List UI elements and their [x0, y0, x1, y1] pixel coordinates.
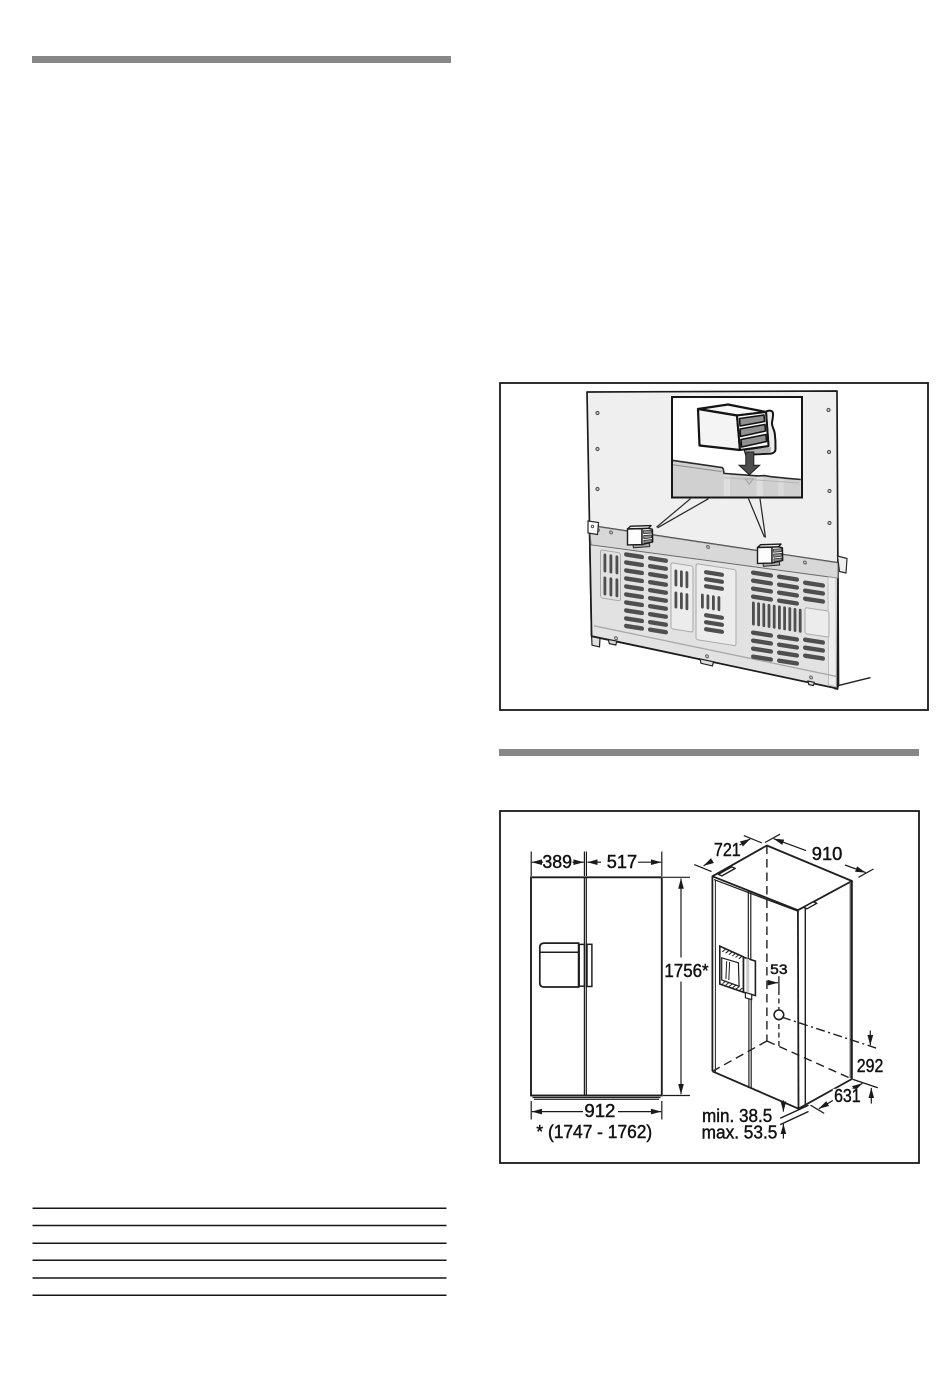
- svg-text:517: 517: [607, 851, 637, 872]
- svg-text:721: 721: [714, 839, 741, 860]
- svg-text:912: 912: [584, 1100, 615, 1121]
- svg-text:389: 389: [542, 851, 572, 872]
- svg-text:53: 53: [770, 962, 788, 977]
- svg-text:1756*: 1756*: [664, 960, 708, 981]
- svg-text:910: 910: [812, 843, 843, 864]
- svg-text:* (1747 - 1762): * (1747 - 1762): [536, 1121, 652, 1142]
- svg-text:max. 53.5: max. 53.5: [702, 1121, 778, 1142]
- svg-text:631: 631: [834, 1085, 861, 1106]
- svg-text:292: 292: [857, 1055, 884, 1076]
